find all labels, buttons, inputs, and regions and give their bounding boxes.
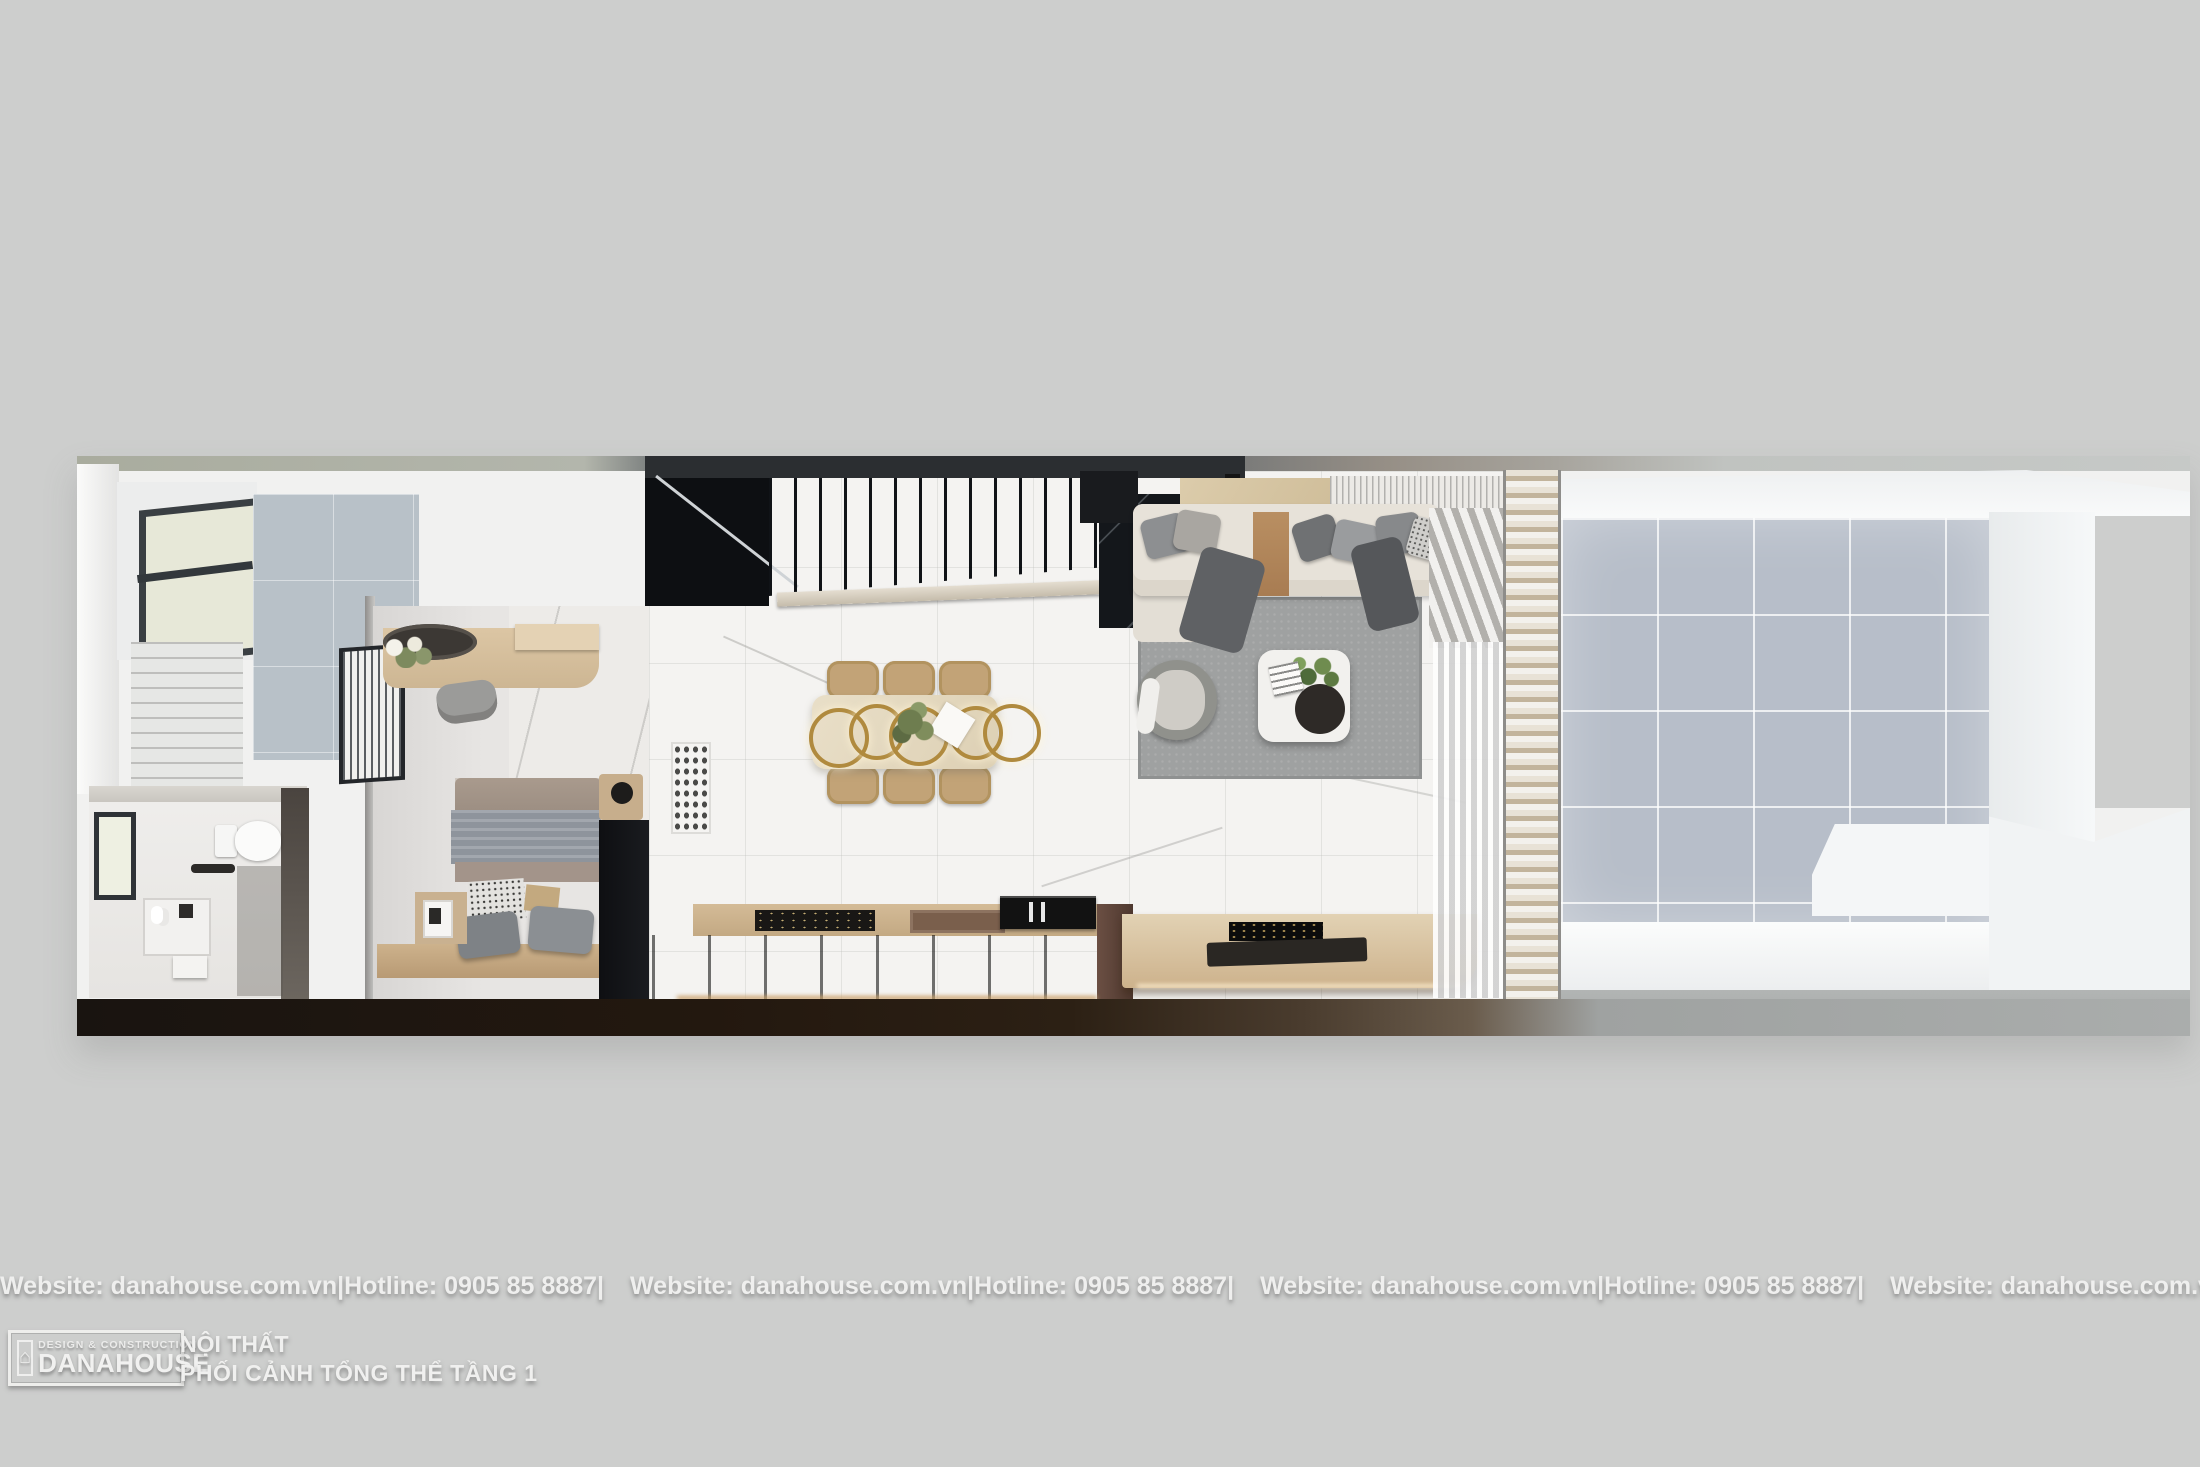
toiletry-box xyxy=(179,904,193,918)
caption-line-2: PHỐI CẢNH TỔNG THỂ TẦNG 1 xyxy=(180,1359,538,1388)
caption-line-1: NỘI THẤT xyxy=(180,1330,538,1359)
hob-controls xyxy=(1029,902,1033,922)
desk-flower-vase xyxy=(377,634,435,668)
dining-centerpiece-plant xyxy=(885,696,941,754)
bathroom-vanity-counter xyxy=(89,786,307,802)
floorplan-render-page: Website: danahouse.com.vn | Hotline: 090… xyxy=(0,0,2200,1467)
bed-headboard xyxy=(455,778,601,810)
towel-shelf-unit xyxy=(131,642,243,790)
bathroom-accessory xyxy=(173,956,207,978)
courtyard-wall-stub xyxy=(1812,824,2002,916)
watermark-segment: Website: danahouse.com.vn | Hotline: 090… xyxy=(1890,1272,2200,1301)
coffee-table-book xyxy=(1268,661,1304,697)
watermark-hotline: Hotline: 0905 85 8887 xyxy=(1604,1272,1857,1301)
watermark-hotline: Hotline: 0905 85 8887 xyxy=(344,1272,597,1301)
dining-chair-bottom-2 xyxy=(883,766,935,804)
watermark-website: Website: danahouse.com.vn xyxy=(1890,1272,2200,1301)
photo-frame-art xyxy=(429,908,441,924)
induction-hob xyxy=(1000,896,1096,929)
floor-cushion-gray-right xyxy=(527,905,595,954)
bathroom-side-window xyxy=(94,812,136,900)
bed-foot-runner xyxy=(455,862,601,882)
entrance-opening xyxy=(2095,516,2190,808)
dining-chair-bottom-1 xyxy=(827,766,879,804)
shower-dark-wall xyxy=(281,788,309,1000)
watermark-separator: | xyxy=(1857,1272,1864,1301)
toiletry-bottles xyxy=(151,906,163,924)
watermark-segment: Website: danahouse.com.vn | Hotline: 090… xyxy=(0,1272,630,1301)
watermark-website: Website: danahouse.com.vn xyxy=(1260,1272,1597,1301)
watermark-separator: | xyxy=(1227,1272,1234,1301)
danahouse-logo-icon: ⌂ xyxy=(17,1340,33,1376)
bottom-wall-edge xyxy=(77,999,2190,1036)
corner-louver-blind xyxy=(1429,508,1503,648)
dining-chair-top-3 xyxy=(939,661,991,699)
nightstand-lamp xyxy=(611,782,633,804)
louver-partition-wall xyxy=(1503,470,1561,1000)
floorplan-render xyxy=(77,456,2190,1036)
stair-void-shadow xyxy=(645,456,1245,478)
sheer-curtain xyxy=(1433,642,1509,998)
television xyxy=(1229,922,1323,941)
desk-upper-cabinet xyxy=(515,624,599,650)
dining-chair-bottom-3 xyxy=(939,766,991,804)
watermark-segment: Website: danahouse.com.vn | Hotline: 090… xyxy=(630,1272,1260,1301)
dining-chair-top-1 xyxy=(827,661,879,699)
shower-fixture xyxy=(191,864,235,873)
render-caption: NỘI THẤT PHỐI CẢNH TỔNG THỂ TẦNG 1 xyxy=(180,1330,538,1389)
courtyard-top-walkway xyxy=(1561,470,2190,522)
floor-bottle-tray xyxy=(671,742,711,834)
kitchen-sink xyxy=(910,910,1005,933)
watermark-hotline: Hotline: 0905 85 8887 xyxy=(974,1272,1227,1301)
built-in-oven xyxy=(755,910,875,931)
shower-glass-area xyxy=(237,866,283,996)
watermark-website: Website: danahouse.com.vn xyxy=(630,1272,967,1301)
toilet-bowl xyxy=(235,821,281,861)
stair-landing-left xyxy=(645,478,769,606)
west-exterior-wall xyxy=(77,464,119,794)
pendant-ring-light-5 xyxy=(983,704,1041,762)
foyer-dark-wall xyxy=(1080,471,1138,523)
bed-blanket xyxy=(451,810,601,864)
tv-shelf-led-light xyxy=(1137,984,1467,988)
watermark-website: Website: danahouse.com.vn xyxy=(0,1272,337,1301)
kitchen-base-cabinets xyxy=(652,935,1097,999)
watermark-segment: Website: danahouse.com.vn | Hotline: 090… xyxy=(1260,1272,1890,1301)
dining-chair-top-2 xyxy=(883,661,935,699)
watermark-separator: | xyxy=(597,1272,604,1301)
toilet-tank xyxy=(215,825,237,857)
watermark-row: Website: danahouse.com.vn | Hotline: 090… xyxy=(0,1272,2200,1301)
danahouse-logo: ⌂ DESIGN & CONSTRUCTION DANAHOUSE xyxy=(8,1330,184,1386)
